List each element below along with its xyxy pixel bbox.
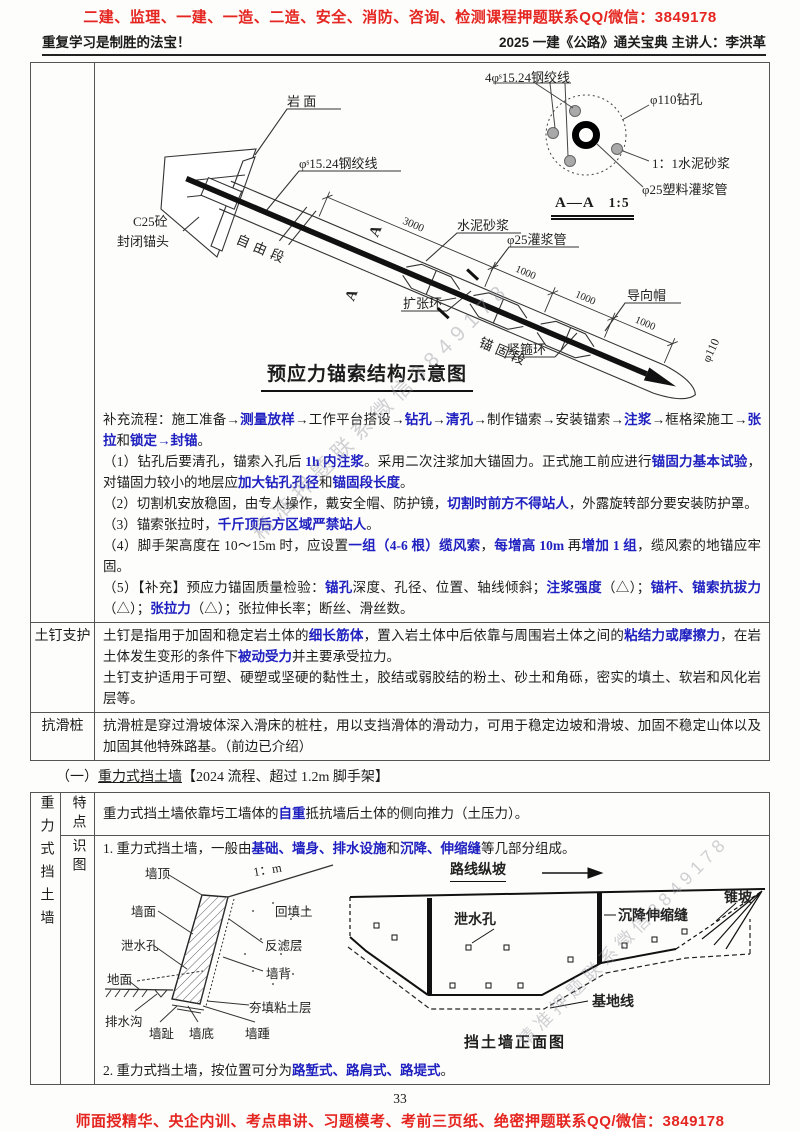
filter-layer-label: 反滤层 — [265, 935, 303, 954]
gravity-wall-heading: （一）重力式挡土墙【2024 流程、超过 1.2m 脚手架】 — [56, 766, 800, 786]
grout-pipe-label: φ25灌浆管 — [507, 229, 567, 248]
anchor-head-label-1: C25砼 — [133, 211, 168, 230]
section-aa-mark: A—A1:5 — [551, 195, 634, 220]
gravity-side-label-cell: 重力式挡土墙 — [31, 793, 61, 1085]
item-5-paragraph: （5）【补充】预应力锚固质量检验：锚孔深度、孔径、位置、轴线倾斜；注浆强度（△）… — [103, 577, 761, 619]
drill-hole-label: φ110钻孔 — [650, 89, 703, 108]
front-view-title: 挡土墙正面图 — [464, 1031, 566, 1052]
anchor-diagram-title: 预应力锚索结构示意图 — [261, 359, 473, 392]
feature-content-cell: 重力式挡土墙依靠圬工墙体的自重抵抗墙后土体的侧向推力（土压力）。 — [95, 793, 770, 836]
table-row-anti-slide: 抗滑桩 抗滑桩是穿过滑坡体深入滑床的桩柱，用以支挡滑体的滑动力，可用于稳定边坡和… — [31, 713, 770, 761]
position-type-line: 2. 重力式挡土墙，按位置可分为路堑式、路肩式、路堤式。 — [103, 1060, 761, 1081]
wall-diagrams-row: 墙顶 墙面 泄水孔 地面 排水沟 墙趾 墙底 墙踵 回填土 反滤层 墙背 夯填粘… — [103, 859, 761, 1060]
section-aa-text: A—A — [555, 195, 595, 211]
soil-nail-content-cell: 土钉是指用于加固和稳定岩土体的细长筋体，置入岩土体中后依靠与周围岩土体之间的粘结… — [95, 623, 770, 713]
header-motto: 重复学习是制胜的法宝！ — [42, 31, 191, 51]
soil-nail-row-label: 土钉支护 — [31, 623, 95, 713]
gravity-wall-table: 重力式挡土墙 特点 重力式挡土墙依靠圬工墙体的自重抵抗墙后土体的侧向推力（土压力… — [30, 792, 770, 1085]
section-aa-scale: 1:5 — [609, 195, 630, 210]
composition-line: 1. 重力式挡土墙，一般由基础、墙身、排水设施和沉降、伸缩缝等几部分组成。 — [103, 838, 761, 859]
guide-cap-label: 导向帽 — [627, 285, 666, 304]
item-1-paragraph: （1）钻孔后要清孔，锚索入孔后 1h 内注浆。采用二次注浆加大锚固力。正式施工前… — [103, 451, 761, 493]
soil-nail-paragraph-2: 土钉支护适用于可塑、硬塑或坚硬的黏性土，胶结或弱胶结的粉土、砂土和角砾，密实的填… — [103, 667, 761, 709]
expansion-ring-label: 扩张环 — [403, 293, 442, 312]
svg-text:1000: 1000 — [573, 289, 597, 307]
hoop-ring-label: 紧箍环 — [507, 339, 546, 358]
anchor-cable-diagram: 3000 1000 1000 1000 自由段 锚固段 — [103, 65, 776, 409]
route-slope-label: 路线纵坡 — [450, 859, 506, 882]
base-line-label: 基地线 — [592, 991, 634, 1011]
diagram-row: 识图 1. 重力式挡土墙，一般由基础、墙身、排水设施和沉降、伸缩缝等几部分组成。 — [31, 836, 770, 1085]
ditch-label: 排水沟 — [105, 1011, 143, 1030]
supplement-flow-paragraph: 补充流程：施工准备→测量放样→工作平台搭设→钻孔→清孔→制作锚索→安装锚索→注浆… — [103, 409, 761, 451]
anti-slide-paragraph: 抗滑桩是穿过滑坡体深入滑床的桩柱，用以支挡滑体的滑动力，可用于稳定边坡和滑坡、加… — [103, 715, 761, 757]
svg-text:1000: 1000 — [514, 264, 538, 282]
feature-label: 特点 — [68, 795, 88, 833]
item-3-paragraph: （3）锚索张拉时，千斤顶后方区域严禁站人。 — [103, 514, 761, 535]
clay-layer-label: 夯填粘土层 — [249, 997, 312, 1016]
header-edition: 2025 一建《公路》通关宝典 主讲人：李洪革 — [499, 31, 766, 51]
mortar-ratio-label: 1：1水泥砂浆 — [652, 153, 730, 172]
joint-label: 沉降伸缩缝 — [618, 905, 688, 925]
row-label-empty — [31, 63, 95, 623]
bottom-label: 墙底 — [189, 1023, 214, 1042]
diagram-label: 识图 — [68, 838, 88, 876]
anchor-content-cell: 3000 1000 1000 1000 自由段 锚固段 — [95, 63, 770, 623]
feature-label-cell: 特点 — [61, 793, 95, 836]
table-row: 3000 1000 1000 1000 自由段 锚固段 — [31, 63, 770, 623]
anchor-table: 3000 1000 1000 1000 自由段 锚固段 — [30, 62, 770, 761]
heading-note: 【2024 流程、超过 1.2m 脚手架】 — [182, 770, 389, 785]
soil-nail-paragraph-1: 土钉是指用于加固和稳定岩土体的细长筋体，置入岩土体中后依靠与周围岩土体之间的粘结… — [103, 625, 761, 667]
anti-slide-content-cell: 抗滑桩是穿过滑坡体深入滑床的桩柱，用以支挡滑体的滑动力，可用于稳定边坡和滑坡、加… — [95, 713, 770, 761]
feature-row: 重力式挡土墙 特点 重力式挡土墙依靠圬工墙体的自重抵抗墙后土体的侧向推力（土压力… — [31, 793, 770, 836]
wall-back-label: 墙背 — [266, 963, 291, 982]
page-header: 重复学习是制胜的法宝！ 2025 一建《公路》通关宝典 主讲人：李洪革 — [42, 31, 766, 56]
table-row-soil-nail: 土钉支护 土钉是指用于加固和稳定岩土体的细长筋体，置入岩土体中后依靠与周围岩土体… — [31, 623, 770, 713]
bottom-banner: 师面授精华、央企内训、考点串讲、习题模考、考前三页纸、绝密押题联系QQ/微信：3… — [0, 1110, 800, 1131]
strand-label: φˢ15.24钢绞线 — [299, 153, 378, 172]
strand4-label: 4φˢ15.24钢绞线 — [485, 67, 570, 86]
heading-title: 重力式挡土墙 — [98, 770, 182, 785]
plastic-grout-pipe-label: φ25塑料灌浆管 — [642, 179, 728, 198]
gravity-side-label: 重力式挡土墙 — [36, 795, 56, 933]
anti-slide-row-label: 抗滑桩 — [31, 713, 95, 761]
wall-top-label: 墙顶 — [145, 863, 170, 882]
heading-number: （一） — [56, 770, 98, 785]
cement-mortar-label: 水泥砂浆 — [457, 215, 509, 234]
wall-section-diagram: 墙顶 墙面 泄水孔 地面 排水沟 墙趾 墙底 墙踵 回填土 反滤层 墙背 夯填粘… — [103, 859, 346, 1060]
heel-label: 墙踵 — [245, 1023, 270, 1042]
diagram-label-cell: 识图 — [61, 836, 95, 1085]
front-weep-hole-label: 泄水孔 — [454, 909, 496, 929]
toe-label: 墙趾 — [149, 1023, 174, 1042]
rock-face-label: 岩 面 — [287, 91, 316, 110]
cone-slope-label: 锥坡 — [724, 887, 752, 907]
page-number: 33 — [0, 1091, 800, 1107]
anchor-head-label-2: 封闭锚头 — [117, 231, 169, 250]
svg-text:3000: 3000 — [401, 215, 426, 235]
wall-face-label: 墙面 — [131, 901, 156, 920]
diagram-content-cell: 1. 重力式挡土墙，一般由基础、墙身、排水设施和沉降、伸缩缝等几部分组成。 — [95, 836, 770, 1085]
ground-label: 地面 — [107, 969, 132, 988]
backfill-label: 回填土 — [275, 901, 313, 920]
top-banner: 二建、监理、一建、一造、二造、安全、消防、咨询、检测课程押题联系QQ/微信：38… — [0, 0, 800, 27]
wall-front-diagram: 路线纵坡 泄水孔 沉降伸缩缝 锥坡 基地线 挡土墙正面图 — [346, 859, 766, 1060]
anchor-cable-drawing: 3000 1000 1000 1000 自由段 锚固段 — [103, 65, 776, 409]
feature-paragraph: 重力式挡土墙依靠圬工墙体的自重抵抗墙后土体的侧向推力（土压力）。 — [103, 803, 761, 824]
item-2-paragraph: （2）切割机安放稳固，由专人操作，戴安全帽、防护镜，切割时前方不得站人，外露旋转… — [103, 493, 761, 514]
weep-hole-label: 泄水孔 — [121, 935, 159, 954]
item-4-paragraph: （4）脚手架高度在 10～15m 时，应设置一组（4-6 根）缆风索，每增高 1… — [103, 535, 761, 577]
wall-front-drawing — [346, 859, 766, 1060]
svg-text:1000: 1000 — [633, 315, 657, 333]
